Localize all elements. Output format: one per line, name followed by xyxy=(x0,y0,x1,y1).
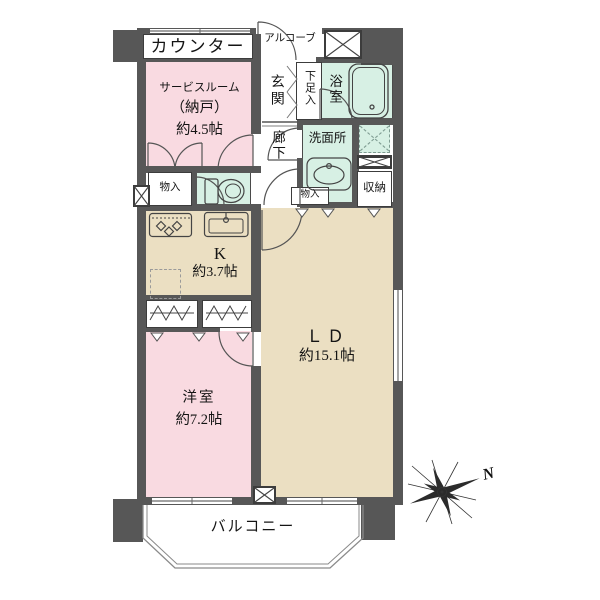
ps-box-topright xyxy=(324,30,362,59)
label-service-sub: （納戸） xyxy=(146,101,253,116)
compass-icon: N xyxy=(408,460,498,524)
label-counter: カウンター xyxy=(143,38,253,56)
label-western-size: 約7.2帖 xyxy=(146,413,252,428)
corner-block-bl xyxy=(113,499,143,542)
label-western: 洋室 xyxy=(146,391,252,406)
label-service-name: サービスルーム xyxy=(146,82,253,94)
ps-box-bottom xyxy=(253,486,276,504)
label-alcove: アルコーブ xyxy=(258,33,322,44)
label-kitchen-size: 約3.7帖 xyxy=(170,266,260,281)
label-washroom: 洗面所 xyxy=(300,132,355,145)
floor-plan: N カウンター サービスルーム （納戸） 約4.5帖 アルコーブ 玄関 下足入 … xyxy=(0,0,600,600)
washer-space xyxy=(359,124,390,153)
vent-strip xyxy=(357,155,392,169)
corner-block-br xyxy=(361,499,395,540)
label-storage-left: 物入 xyxy=(148,182,192,193)
label-storage-hall: 物入 xyxy=(291,191,329,201)
window-ld xyxy=(287,498,357,504)
label-entrance: 玄関 xyxy=(268,74,283,108)
label-shoe-box: 下足入 xyxy=(303,70,315,106)
label-closet-ld: 収納 xyxy=(357,182,392,194)
closet-2 xyxy=(202,300,252,328)
room-toilet-fill xyxy=(196,171,251,207)
entrance-step xyxy=(262,122,298,126)
window-west xyxy=(152,498,232,504)
label-ld-size: 約15.1帖 xyxy=(261,349,393,365)
wall-k-ld-lower xyxy=(251,366,261,497)
wall-left xyxy=(137,28,146,505)
corner-block-tl xyxy=(113,30,147,62)
wall-right xyxy=(393,28,403,505)
label-service-size: 約4.5帖 xyxy=(146,123,253,138)
label-kitchen: K xyxy=(180,245,260,263)
wall-toilet-left xyxy=(192,171,197,206)
window-right xyxy=(394,290,402,381)
label-hallway: 廊下 xyxy=(270,130,284,161)
balcony-outline xyxy=(143,505,363,568)
closet-1 xyxy=(146,300,198,328)
label-bathroom: 浴室 xyxy=(327,74,341,105)
label-balcony: バルコニー xyxy=(178,520,328,536)
compass-n-label: N xyxy=(480,464,498,484)
window-top xyxy=(150,29,250,33)
label-ld: ＬＤ xyxy=(261,328,393,346)
